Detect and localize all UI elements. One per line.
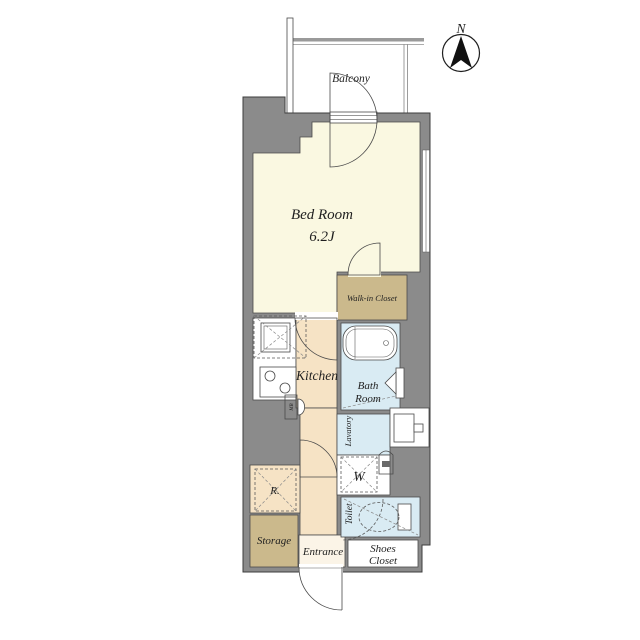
entrance-door-opening bbox=[299, 564, 343, 573]
wic-door-opening bbox=[348, 268, 381, 277]
stove bbox=[260, 367, 296, 397]
washer-label: W bbox=[353, 469, 366, 484]
entrance-label: Entrance bbox=[302, 546, 343, 558]
svg-text:MB: MB bbox=[290, 403, 295, 411]
bathtub bbox=[343, 326, 397, 360]
toilet-label: Toilet bbox=[345, 503, 355, 525]
floor-plan: MB Balcony Bed Room 6.2J Walk-in Closet … bbox=[0, 0, 640, 640]
north-arrow-icon bbox=[450, 36, 472, 68]
refrigerator-label: R. bbox=[269, 485, 279, 497]
kitchen-floor bbox=[296, 318, 337, 408]
bathroom-label-line1: Bath bbox=[358, 380, 379, 392]
shoes-closet-label-line1: Shoes bbox=[370, 543, 396, 555]
balcony-railing bbox=[293, 38, 424, 42]
kitchen-sink bbox=[261, 323, 290, 352]
bedroom-right-window bbox=[423, 150, 430, 252]
shoes-closet-label-line2: Closet bbox=[369, 555, 398, 567]
walk-in-closet-label: Walk-in Closet bbox=[347, 293, 398, 303]
bedroom-label: Bed Room bbox=[291, 207, 353, 223]
entrance-door-swing bbox=[299, 567, 342, 610]
kitchen-label: Kitchen bbox=[295, 368, 338, 383]
hallway-floor bbox=[300, 408, 337, 535]
floor-plan-canvas: MB Balcony Bed Room 6.2J Walk-in Closet … bbox=[0, 0, 640, 640]
lavatory-label: Lavatory bbox=[343, 415, 353, 447]
balcony bbox=[287, 18, 424, 118]
balcony-label: Balcony bbox=[332, 73, 371, 85]
balcony-side-wall bbox=[287, 18, 293, 118]
north-label: N bbox=[455, 21, 466, 36]
north-compass: N bbox=[443, 21, 480, 72]
bathroom-label-line2: Room bbox=[354, 393, 381, 405]
storage-label: Storage bbox=[257, 535, 291, 547]
bedroom-size-label: 6.2J bbox=[309, 229, 336, 245]
balcony-slider-window bbox=[330, 112, 377, 123]
